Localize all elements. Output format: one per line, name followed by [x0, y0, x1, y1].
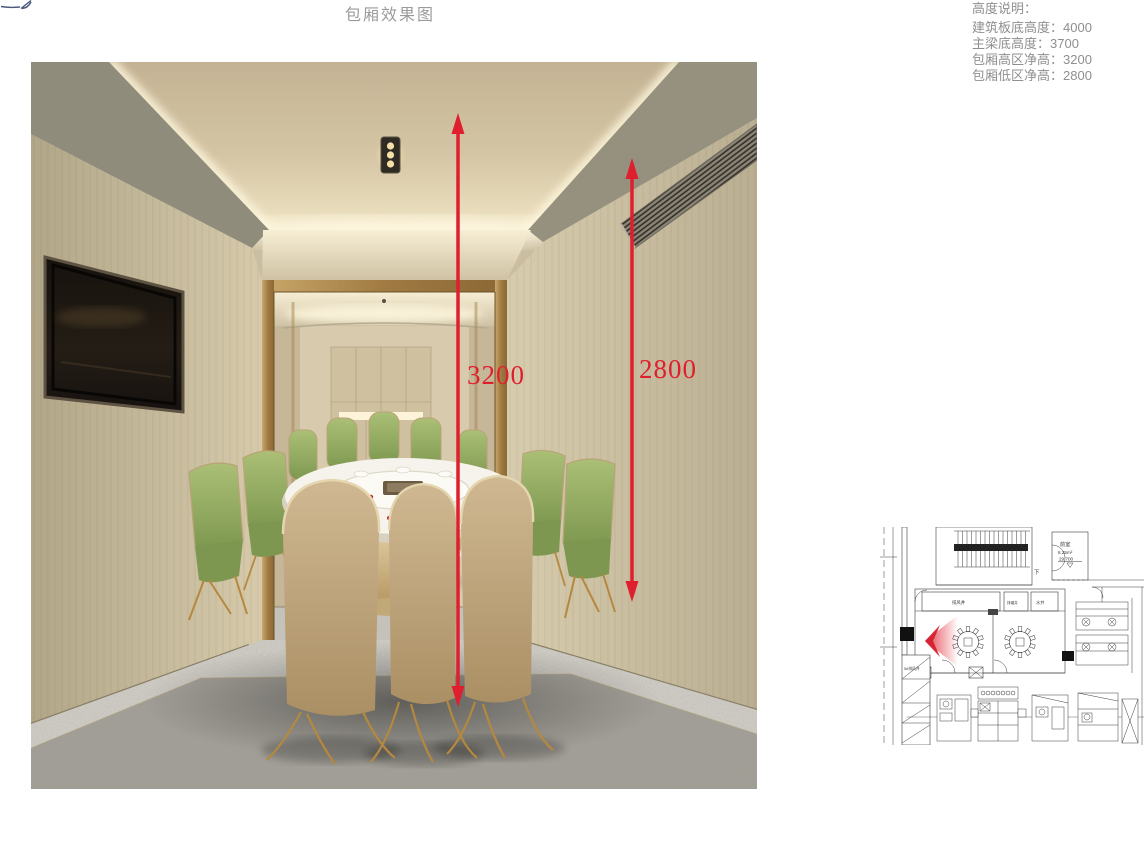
room-rendering-svg: 3200 2800	[31, 62, 757, 789]
height-note-line: 建筑板底高度：4000	[972, 20, 1144, 36]
height-note-line: 包厢高区净高：3200	[972, 52, 1144, 68]
dimension-3200-label: 3200	[467, 360, 525, 390]
height-note-line: 主梁底高度：3700	[972, 36, 1144, 52]
plan-label-shaft-air: 排风井	[952, 599, 966, 606]
plan-label-shaft-exhaust: 5#排风井	[904, 666, 920, 671]
floor-plan-svg: 前室 8.25m² 29.700 下 排风井 排烟井 水井 5#排风井	[880, 527, 1144, 745]
dimension-2800-label: 2800	[639, 354, 697, 384]
height-notes-heading: 高度说明：	[972, 1, 1144, 17]
presentation-sheet: 包厢效果图 高度说明： 建筑板底高度：4000 主梁底高度：3700 包厢高区净…	[0, 0, 1144, 851]
logo-fragment-icon	[0, 0, 40, 12]
height-notes: 高度说明： 建筑板底高度：4000 主梁底高度：3700 包厢高区净高：3200…	[972, 1, 1144, 84]
page-title: 包厢效果图	[345, 1, 435, 25]
room-rendering: 3200 2800	[31, 62, 757, 789]
plan-label-shaft-smoke: 排烟井	[1007, 600, 1018, 605]
plan-label-stair-down: 下	[1034, 569, 1040, 576]
plan-label-anteroom-area: 8.25m²	[1058, 550, 1073, 555]
height-note-line: 包厢低区净高：2800	[972, 68, 1144, 84]
plan-label-shaft-water: 水井	[1036, 599, 1044, 606]
floor-plan: 前室 8.25m² 29.700 下 排风井 排烟井 水井 5#排风井	[880, 527, 1144, 745]
plan-label-anteroom: 前室	[1060, 540, 1070, 548]
plan-label-anteroom-level: 29.700	[1059, 557, 1073, 562]
